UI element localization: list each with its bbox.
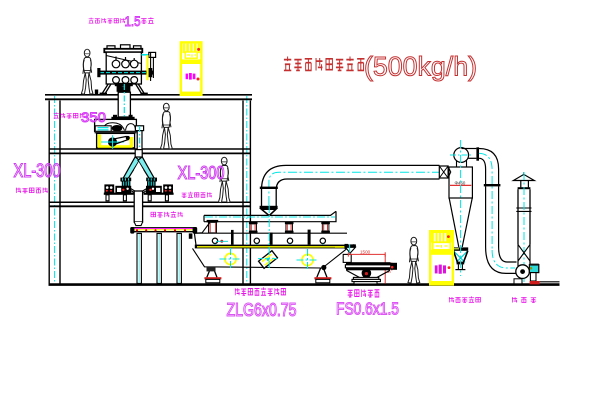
svg-text:FS0.6x1.5: FS0.6x1.5	[336, 299, 399, 319]
svg-text:XL-300: XL-300	[178, 163, 225, 183]
svg-text:ZLG6x0.75: ZLG6x0.75	[227, 300, 297, 320]
svg-text:1.5: 1.5	[125, 14, 141, 29]
svg-text:350: 350	[81, 110, 106, 125]
svg-text:1500: 1500	[360, 249, 371, 254]
svg-text:XL-300: XL-300	[14, 161, 61, 182]
svg-text:(500kg/h): (500kg/h)	[364, 52, 477, 82]
